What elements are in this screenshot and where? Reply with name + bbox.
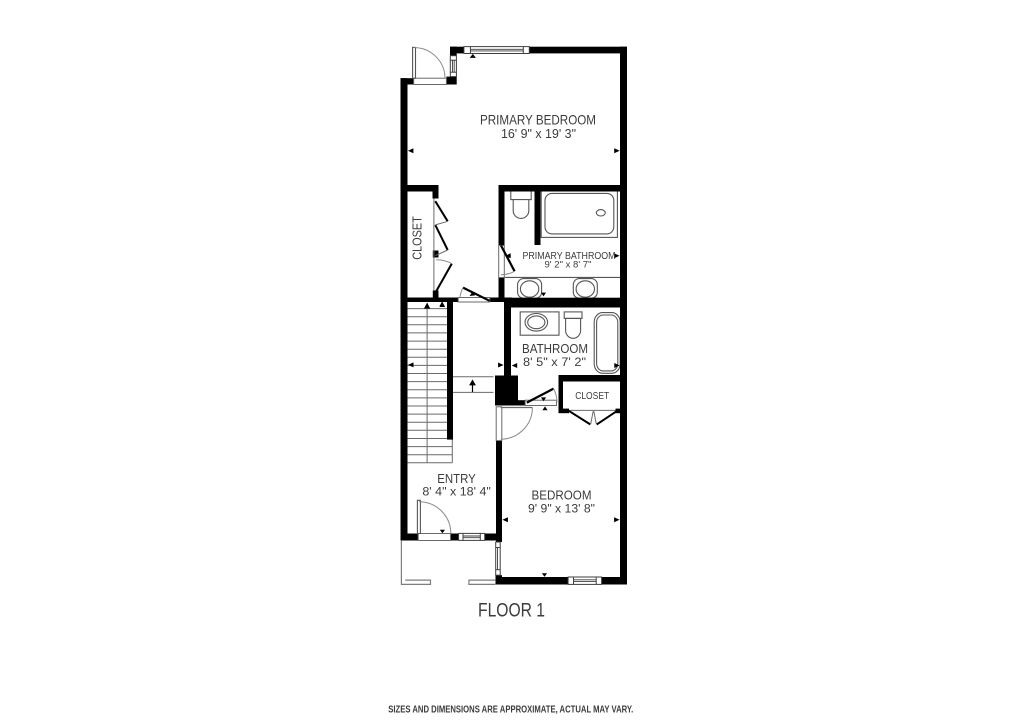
svg-text:ENTRY: ENTRY	[437, 471, 476, 486]
svg-text:SIZES AND DIMENSIONS ARE APPRO: SIZES AND DIMENSIONS ARE APPROXIMATE, AC…	[388, 705, 633, 716]
svg-text:8' 4" x 18' 4": 8' 4" x 18' 4"	[422, 487, 491, 499]
svg-text:9' 2" x 8' 7": 9' 2" x 8' 7"	[545, 260, 592, 270]
svg-text:BATHROOM: BATHROOM	[522, 342, 588, 356]
svg-text:9' 9" x 13' 8": 9' 9" x 13' 8"	[528, 503, 595, 515]
svg-text:FLOOR 1: FLOOR 1	[478, 600, 545, 622]
svg-text:CLOSET: CLOSET	[410, 216, 425, 260]
svg-text:CLOSET: CLOSET	[575, 390, 609, 402]
svg-text:8' 5" x 7' 2": 8' 5" x 7' 2"	[523, 357, 586, 369]
svg-text:16' 9" x 19' 3": 16' 9" x 19' 3"	[501, 127, 576, 141]
svg-text:BEDROOM: BEDROOM	[532, 488, 592, 503]
svg-text:PRIMARY BEDROOM: PRIMARY BEDROOM	[480, 111, 596, 127]
